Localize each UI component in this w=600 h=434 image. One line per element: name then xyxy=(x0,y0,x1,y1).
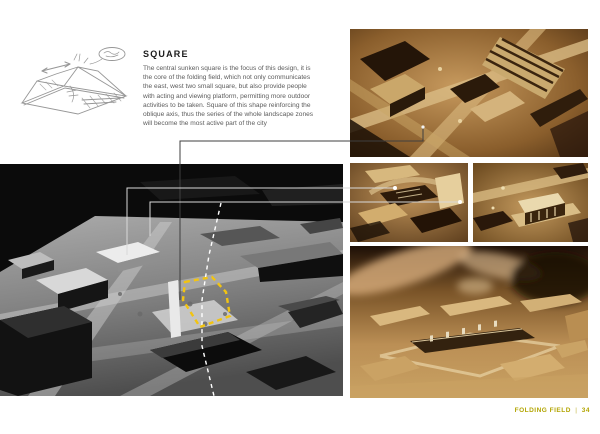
page-footer: FOLDING FIELD | 34 xyxy=(515,407,590,414)
article-text-block: SQUARE The central sunken square is the … xyxy=(143,49,317,129)
model-detail-photo-1-art xyxy=(350,163,468,242)
model-detail-photo-2-art xyxy=(473,163,588,242)
concept-sketch-drawing xyxy=(12,40,134,120)
section-title: SQUARE xyxy=(143,49,317,59)
site-model-photo-art xyxy=(0,164,343,396)
model-detail-photo-2 xyxy=(473,163,588,242)
portfolio-page: SQUARE The central sunken square is the … xyxy=(0,0,600,434)
footer-separator: | xyxy=(573,407,579,414)
model-aerial-photo-art xyxy=(350,29,588,157)
footer-page-number: 34 xyxy=(582,407,590,414)
model-making-photo xyxy=(350,246,588,398)
footer-project-label: FOLDING FIELD xyxy=(515,407,571,414)
section-body: The central sunken square is the focus o… xyxy=(143,64,317,129)
model-aerial-photo xyxy=(350,29,588,157)
site-model-photo xyxy=(0,164,343,396)
model-making-photo-art xyxy=(350,246,588,398)
model-detail-photo-1 xyxy=(350,163,468,242)
concept-sketch xyxy=(12,40,134,120)
